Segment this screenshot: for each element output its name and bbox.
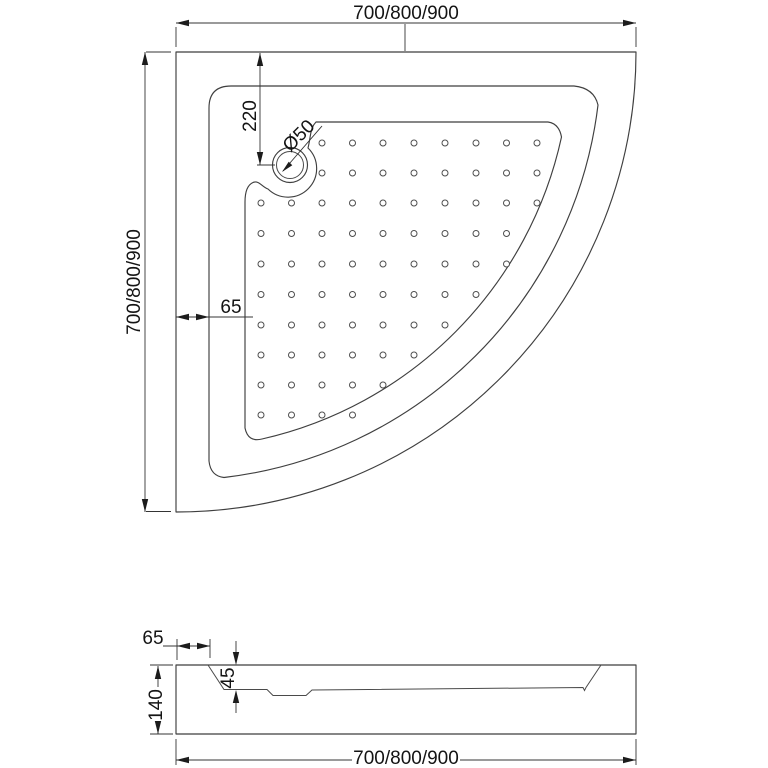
anti-slip-dot — [380, 170, 386, 176]
anti-slip-dot — [289, 261, 295, 267]
anti-slip-dot — [473, 292, 479, 298]
anti-slip-dot — [289, 412, 295, 418]
anti-slip-dot — [504, 140, 510, 146]
anti-slip-dot — [442, 200, 448, 206]
anti-slip-dot — [289, 200, 295, 206]
anti-slip-dot — [319, 352, 325, 358]
anti-slip-dot — [411, 352, 417, 358]
anti-slip-dot — [442, 322, 448, 328]
anti-slip-dot — [504, 200, 510, 206]
anti-slip-dot — [319, 261, 325, 267]
anti-slip-dot — [319, 170, 325, 176]
anti-slip-dot — [411, 261, 417, 267]
anti-slip-dot — [258, 412, 264, 418]
side-basin-profile — [208, 665, 601, 696]
side-view-dimensions: 65 45 140 700/800/900 — [142, 628, 636, 768]
anti-slip-dot — [504, 231, 510, 237]
anti-slip-dot — [258, 292, 264, 298]
anti-slip-dot — [350, 382, 356, 388]
anti-slip-dot — [380, 352, 386, 358]
anti-slip-dot — [258, 352, 264, 358]
anti-slip-dots — [258, 140, 540, 418]
anti-slip-dot — [442, 140, 448, 146]
anti-slip-dot — [350, 412, 356, 418]
anti-slip-dot — [350, 261, 356, 267]
anti-slip-dot — [411, 170, 417, 176]
anti-slip-dot — [258, 322, 264, 328]
anti-slip-dot — [380, 382, 386, 388]
anti-slip-dot — [473, 170, 479, 176]
arrowhead — [155, 721, 161, 734]
top-view-dimensions: 700/800/900 700/800/900 220 Ø50 65 — [124, 3, 636, 512]
arrowhead — [233, 690, 239, 703]
anti-slip-dot — [319, 382, 325, 388]
side-view — [176, 665, 636, 734]
dim-top-width-label: 700/800/900 — [353, 3, 459, 24]
arrowhead — [176, 757, 189, 763]
anti-slip-dot — [534, 140, 540, 146]
arrowhead — [155, 666, 161, 679]
anti-slip-dot — [319, 140, 325, 146]
arrowhead — [142, 52, 148, 65]
anti-slip-dot — [258, 231, 264, 237]
anti-slip-dot — [504, 261, 510, 267]
anti-slip-dot — [319, 322, 325, 328]
anti-slip-dot — [411, 322, 417, 328]
arrowhead — [257, 152, 263, 165]
anti-slip-dot — [442, 292, 448, 298]
anti-slip-dot — [534, 200, 540, 206]
anti-slip-dot — [289, 322, 295, 328]
anti-slip-dot — [350, 200, 356, 206]
tray-floor-outline — [245, 122, 562, 440]
arrowhead — [142, 499, 148, 512]
anti-slip-dot — [380, 200, 386, 206]
anti-slip-dot — [350, 322, 356, 328]
anti-slip-dot — [350, 170, 356, 176]
anti-slip-dot — [504, 170, 510, 176]
anti-slip-dot — [442, 261, 448, 267]
arrowhead — [177, 643, 190, 649]
arrowhead — [623, 20, 636, 26]
anti-slip-dot — [411, 231, 417, 237]
anti-slip-dot — [258, 261, 264, 267]
anti-slip-dot — [473, 261, 479, 267]
anti-slip-dot — [380, 231, 386, 237]
anti-slip-dot — [350, 292, 356, 298]
anti-slip-dot — [258, 382, 264, 388]
dim-drain-offset-label: 220 — [240, 100, 261, 132]
dim-bottom-width-label: 700/800/900 — [353, 748, 459, 768]
anti-slip-dot — [289, 382, 295, 388]
anti-slip-dot — [442, 170, 448, 176]
anti-slip-dot — [350, 231, 356, 237]
dim-rim-width-label: 65 — [220, 297, 241, 318]
dim-edge-offset-label: 65 — [142, 628, 163, 649]
anti-slip-dot — [473, 231, 479, 237]
arrowhead — [196, 314, 209, 320]
arrowhead — [176, 20, 189, 26]
drawing-page: 700/800/900 700/800/900 220 Ø50 65 — [0, 0, 768, 768]
drain-leader-arrowhead — [282, 162, 292, 172]
anti-slip-dot — [289, 292, 295, 298]
anti-slip-dot — [319, 412, 325, 418]
anti-slip-dot — [442, 231, 448, 237]
dim-total-height-label: 140 — [146, 689, 167, 721]
anti-slip-dot — [411, 140, 417, 146]
anti-slip-dot — [473, 140, 479, 146]
arrowhead — [197, 643, 210, 649]
anti-slip-dot — [380, 140, 386, 146]
anti-slip-dot — [350, 352, 356, 358]
anti-slip-dot — [319, 292, 325, 298]
dim-basin-depth-label: 45 — [218, 667, 239, 688]
dim-drain-diameter-label: Ø50 — [279, 116, 319, 156]
anti-slip-dot — [534, 170, 540, 176]
anti-slip-dot — [350, 140, 356, 146]
anti-slip-dot — [258, 200, 264, 206]
anti-slip-dot — [319, 200, 325, 206]
anti-slip-dot — [473, 200, 479, 206]
arrowhead — [176, 314, 189, 320]
anti-slip-dot — [289, 352, 295, 358]
anti-slip-dot — [380, 292, 386, 298]
anti-slip-dot — [411, 292, 417, 298]
drawing-canvas: 700/800/900 700/800/900 220 Ø50 65 — [0, 0, 768, 768]
anti-slip-dot — [319, 231, 325, 237]
anti-slip-dot — [411, 200, 417, 206]
anti-slip-dot — [380, 322, 386, 328]
side-outer-outline — [176, 665, 636, 734]
arrowhead — [623, 757, 636, 763]
arrowhead — [257, 53, 263, 66]
arrowhead — [233, 652, 239, 665]
dim-left-height-label: 700/800/900 — [124, 229, 145, 335]
anti-slip-dot — [289, 231, 295, 237]
anti-slip-dot — [380, 261, 386, 267]
